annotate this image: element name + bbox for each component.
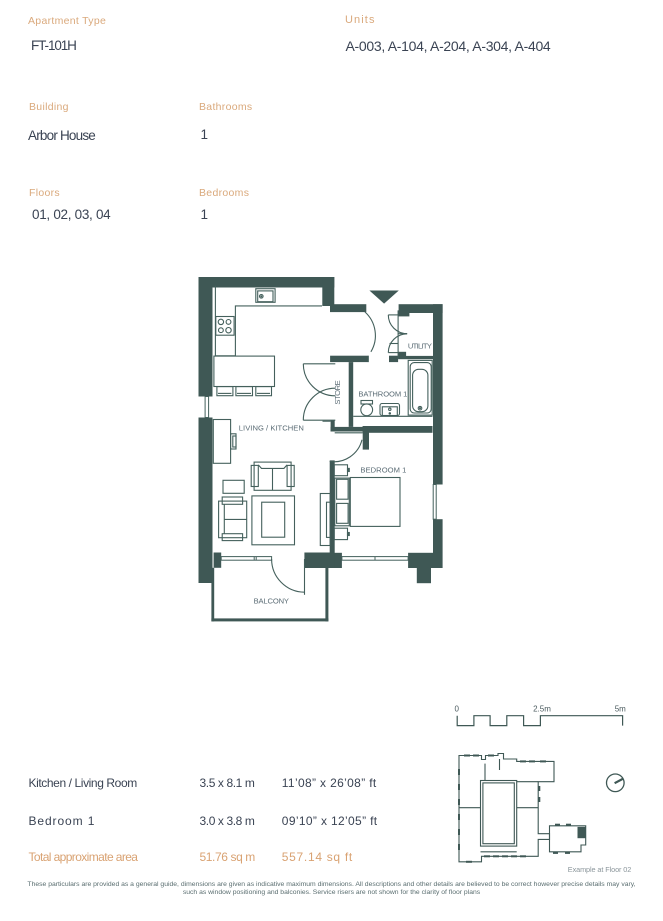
svg-text:5m: 5m — [615, 705, 626, 714]
svg-text:STORE: STORE — [333, 380, 342, 404]
svg-text:2.5m: 2.5m — [533, 705, 551, 714]
svg-text:BALCONY: BALCONY — [254, 597, 289, 606]
svg-text:LIVING / KITCHEN: LIVING / KITCHEN — [239, 424, 304, 433]
svg-text:BEDROOM 1: BEDROOM 1 — [360, 465, 406, 474]
svg-text:BATHROOM 1: BATHROOM 1 — [358, 389, 407, 398]
svg-text:0: 0 — [455, 705, 460, 714]
svg-text:UTILITY: UTILITY — [408, 342, 432, 351]
